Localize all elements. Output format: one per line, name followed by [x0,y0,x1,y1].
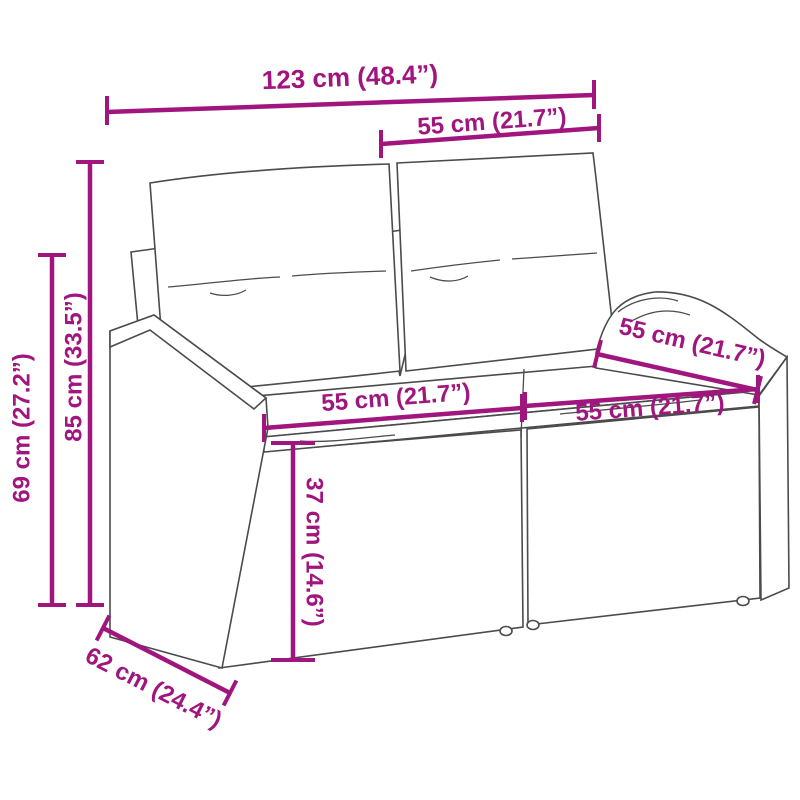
dimension-diagram: 123 cm (48.4”) 55 cm (21.7”) 85 cm (33.5… [0,0,800,800]
base-left-module [218,430,523,668]
right-armrest-side [759,357,789,600]
dim-backrest-width: 55 cm (21.7”) [381,103,599,158]
foot [527,621,539,630]
sofa-dimension-drawing: 123 cm (48.4”) 55 cm (21.7”) 85 cm (33.5… [0,0,800,800]
foot [737,597,749,606]
dim-total-height: 85 cm (33.5”) [60,162,104,605]
foot [500,627,512,636]
seat-height-label: 37 cm (14.6”) [301,477,328,626]
right-back-cushion [397,153,615,371]
total-width-label: 123 cm (48.4”) [261,59,438,96]
dim-armrest-height: 69 cm (27.2”) [8,255,66,605]
total-height-label: 85 cm (33.5”) [60,292,87,441]
base-right-module [527,407,760,625]
backrest-width-label: 55 cm (21.7”) [416,103,567,141]
armrest-height-label: 69 cm (27.2”) [8,353,35,502]
